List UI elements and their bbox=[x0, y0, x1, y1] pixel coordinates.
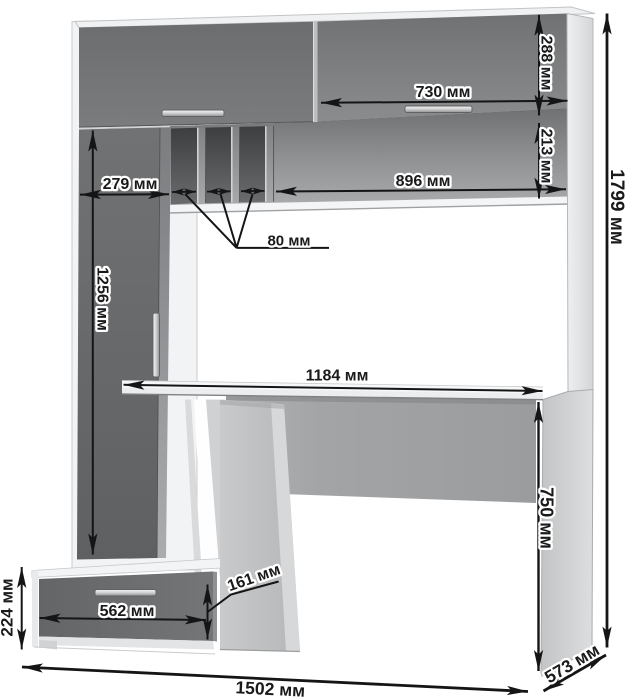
svg-text:279 мм: 279 мм bbox=[103, 176, 158, 193]
svg-text:750 мм: 750 мм bbox=[537, 487, 557, 549]
svg-text:1184 мм: 1184 мм bbox=[306, 368, 369, 385]
svg-text:224 мм: 224 мм bbox=[0, 578, 17, 636]
svg-text:1256 мм: 1256 мм bbox=[94, 267, 111, 331]
svg-text:1799 мм: 1799 мм bbox=[606, 169, 627, 245]
svg-text:896 мм: 896 мм bbox=[396, 173, 451, 190]
svg-text:562 мм: 562 мм bbox=[100, 603, 155, 620]
svg-text:288 мм: 288 мм bbox=[538, 36, 555, 91]
svg-text:213 мм: 213 мм bbox=[538, 129, 555, 184]
svg-text:1502 мм: 1502 мм bbox=[235, 677, 306, 700]
svg-text:730 мм: 730 мм bbox=[416, 84, 471, 101]
svg-text:80 мм: 80 мм bbox=[267, 233, 310, 250]
